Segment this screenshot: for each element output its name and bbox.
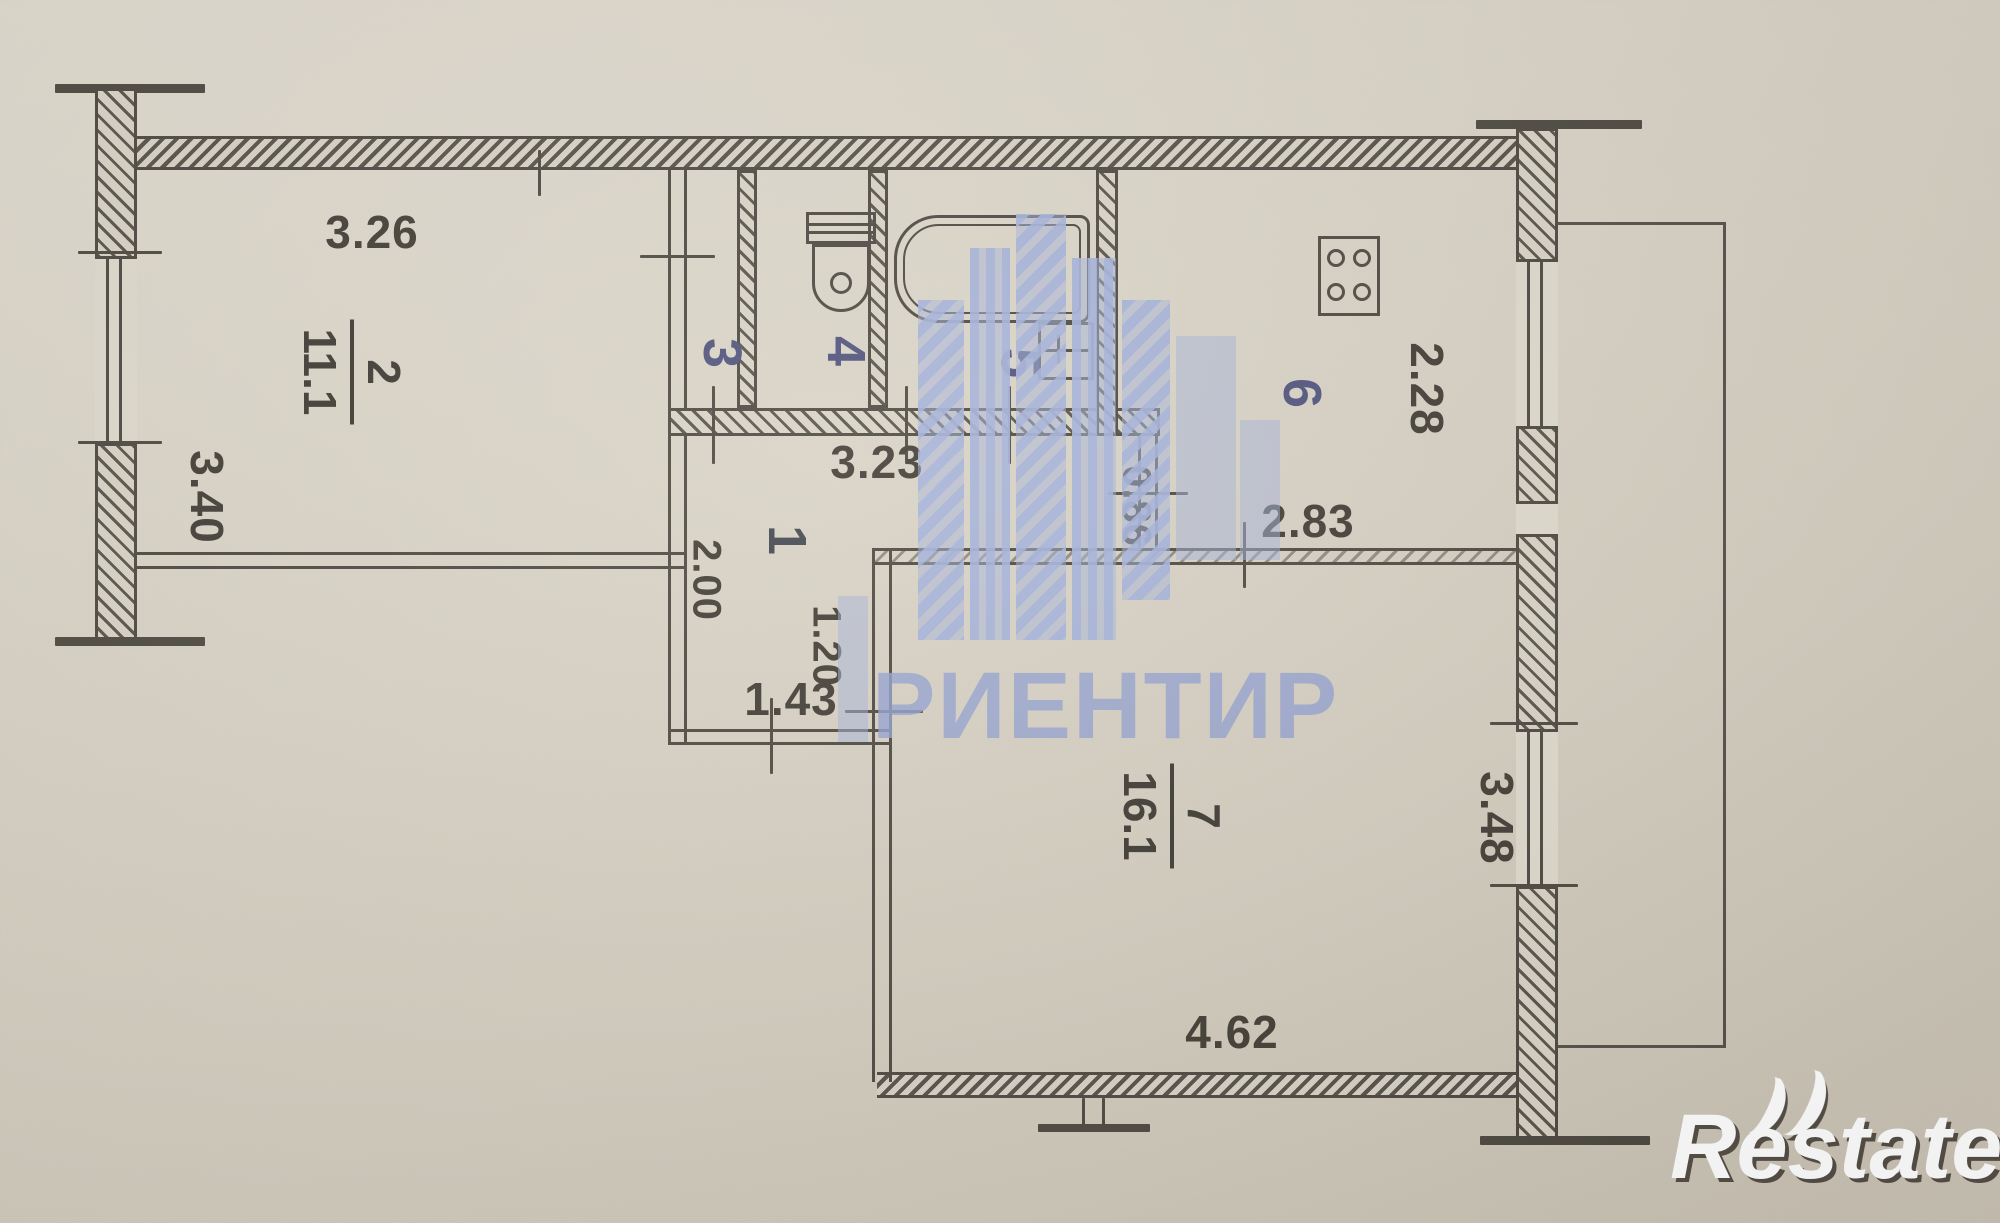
dimension-hall-bottom: 1.43	[744, 672, 838, 726]
wall-room7-top	[872, 548, 1516, 565]
room-number: 3	[692, 338, 752, 368]
dim-tick	[1490, 884, 1578, 887]
room-number: 1	[757, 525, 817, 555]
dim-tick	[1490, 722, 1578, 725]
stove-burner	[1353, 249, 1371, 267]
room-label-4: 4	[815, 336, 877, 366]
toilet-tank-icon	[806, 212, 876, 244]
stove-icon	[1318, 236, 1380, 316]
room-number: 5	[990, 348, 1050, 378]
dimension-value: 3.26	[325, 206, 419, 258]
dimension-value: 4.62	[1185, 1006, 1279, 1058]
window-glass-line	[119, 259, 122, 443]
dim-tick	[712, 386, 715, 464]
exterior-wall-right	[1516, 128, 1558, 1142]
dimension-kitchen-entry: 0.86	[1114, 465, 1159, 547]
balcony-outline	[1558, 222, 1726, 1048]
dim-tick	[640, 255, 715, 258]
dimension-value: 2.00	[685, 539, 729, 621]
dimension-room2-left: 3.40	[180, 450, 234, 544]
dimension-value: 3.40	[181, 450, 233, 544]
dim-tick	[1243, 522, 1246, 588]
dimension-value: 2.28	[1401, 342, 1453, 436]
wall-room5-kitchen	[1096, 170, 1118, 436]
dimension-value: 2.83	[1261, 495, 1355, 547]
toilet-tank-line	[809, 223, 873, 226]
wall-room2-bottom	[137, 552, 687, 569]
room-number: 2	[357, 359, 411, 385]
window-kitchen	[1516, 259, 1558, 429]
sink-mark	[1045, 349, 1089, 352]
plan: 2 11.1 1 3 4 5 6 7 16.1 3.26 3.40 3.23 2…	[0, 0, 2000, 1223]
window-glass-line	[1527, 732, 1530, 886]
dimension-value: 1.43	[744, 673, 838, 725]
dimension-kitchen-bottom: 2.83	[1261, 494, 1355, 548]
balcony-door-line	[1082, 1098, 1085, 1126]
window-glass-line	[1540, 732, 1543, 886]
bathtub-inner-line	[903, 224, 1081, 314]
room-number: 7	[1177, 803, 1231, 829]
dim-tick	[845, 710, 923, 713]
wall-hall-bottom	[668, 729, 889, 745]
dimension-value: 0.86	[1115, 465, 1159, 547]
toilet-tank-line	[809, 231, 873, 234]
room-area: 16.1	[1113, 771, 1167, 861]
fraction-bar	[350, 320, 354, 425]
window-room2	[95, 256, 137, 446]
dimension-value: 3.48	[1471, 771, 1523, 865]
dim-tick	[538, 150, 541, 196]
room-label-1: 1	[756, 525, 818, 555]
wall-cap-bottom-right	[1480, 1136, 1650, 1145]
wall-cap-bottom-left	[55, 637, 205, 646]
sink-mark	[1057, 335, 1060, 363]
wall-room4-room5	[868, 170, 888, 408]
logo-rest: estate	[1736, 1096, 2000, 1198]
dimension-room7-right: 3.48	[1470, 771, 1524, 865]
fraction-bar	[1170, 764, 1174, 869]
window-glass-line	[1527, 262, 1530, 426]
stove-burner	[1327, 283, 1345, 301]
floor-plan-photo: { "rooms": [ {"number": "1"}, {"number":…	[0, 0, 2000, 1223]
wall-room7-left	[872, 548, 892, 1082]
room-label-5: 5	[989, 348, 1051, 378]
wall-hall-top-partition	[668, 408, 1160, 436]
room-label-7: 7 16.1	[1113, 764, 1231, 869]
room-label-3: 3	[691, 338, 753, 368]
window-glass-line	[1540, 262, 1543, 426]
wall-room3-room4	[737, 170, 757, 408]
logo-text: Restate	[1670, 1095, 2000, 1200]
wall-cap-top-right	[1476, 120, 1642, 129]
dimension-value: 3.23	[830, 436, 924, 488]
window-sill-mark	[1516, 501, 1558, 537]
exterior-wall-bottom-room7	[877, 1072, 1516, 1098]
dimension-room2-top: 3.26	[325, 205, 419, 259]
dim-tick	[78, 251, 162, 254]
balcony-door-cap	[1038, 1124, 1150, 1132]
exterior-wall-left	[95, 88, 137, 645]
room-label-2: 2 11.1	[293, 320, 411, 425]
stove-burner	[1327, 249, 1345, 267]
restate-logo: Restate	[1660, 1085, 2000, 1215]
dim-tick	[1008, 386, 1011, 464]
stove-burner	[1353, 283, 1371, 301]
room-label-6: 6	[1271, 378, 1333, 408]
dim-tick	[78, 441, 162, 444]
bathtub-icon	[894, 215, 1090, 323]
balcony-door-line	[1102, 1098, 1105, 1126]
dimension-hall-left: 2.00	[684, 539, 729, 621]
dimension-kitchen-right: 2.28	[1400, 342, 1454, 436]
toilet-drain-icon	[830, 272, 852, 294]
dimension-room7-bottom: 4.62	[1185, 1005, 1279, 1059]
room-number: 4	[816, 336, 876, 366]
dimension-hall-top: 3.23	[830, 435, 924, 489]
logo-letter-r: R	[1670, 1096, 1736, 1198]
room-area: 11.1	[293, 329, 347, 416]
exterior-wall-top	[137, 136, 1558, 170]
room-number: 6	[1272, 378, 1332, 408]
window-glass-line	[106, 259, 109, 443]
